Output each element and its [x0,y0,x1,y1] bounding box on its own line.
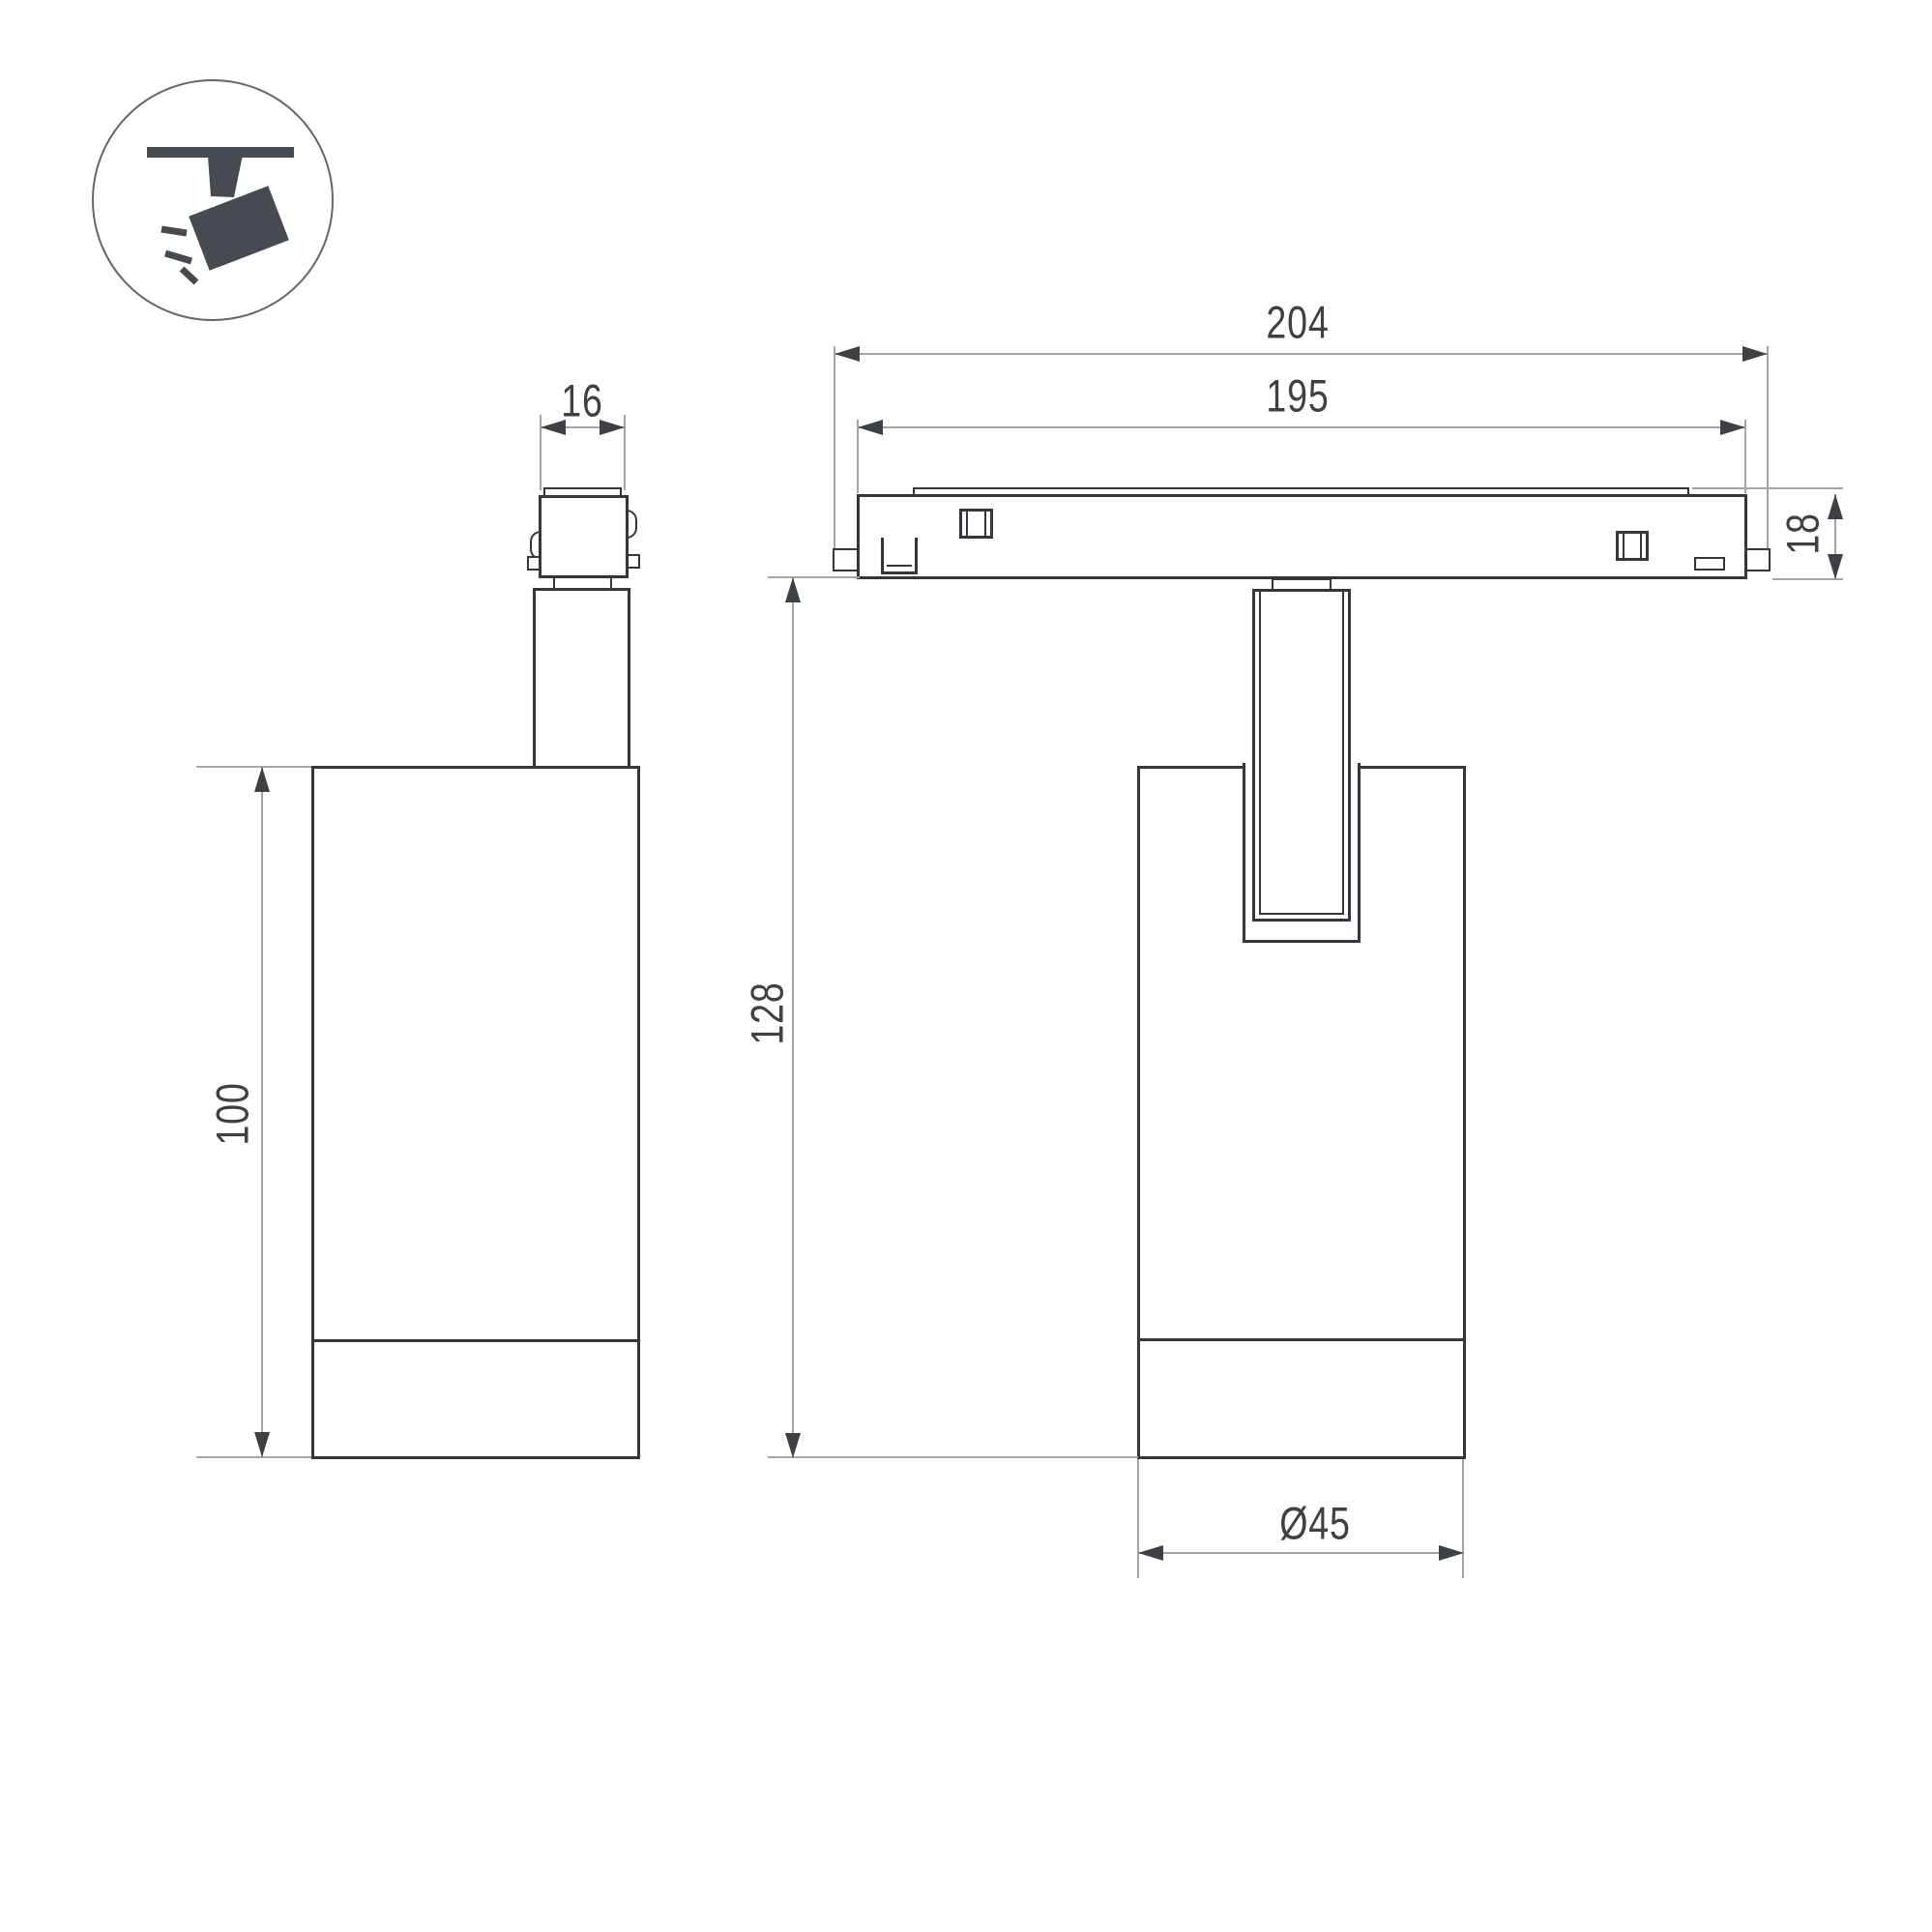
arrow-204-left [834,346,860,362]
dim-line-204 [834,353,1768,355]
dim-label-body-height: 100 [206,1082,259,1145]
fv-end-tab-right [1743,548,1771,571]
arrow-128-bottom [785,1433,801,1458]
icon-mount-stem [208,155,243,197]
dim-label-track-height: 18 [1776,512,1830,554]
arrow-18-bottom [1828,554,1843,579]
sv-lens-line [314,1339,637,1342]
fv-hole-right-rib-a [1623,534,1625,558]
fv-contact-clip [881,538,918,574]
dim-line-d45 [1138,1552,1464,1554]
arrow-204-right [1742,346,1768,362]
fv-end-tab-left [833,548,860,571]
arrow-d45-right [1439,1545,1464,1561]
arrow-100-top [254,767,270,792]
dim-line-195 [858,426,1745,428]
ext-line-128-bottom [768,1456,1138,1458]
arrow-d45-left [1138,1545,1163,1561]
fv-hole-right-rib-b [1640,534,1642,558]
arrow-16-right [600,420,625,435]
ext-line-204-left [834,346,835,550]
icon-lamp-head [189,186,289,271]
fv-slot-right [1694,557,1725,571]
arrow-128-top [785,577,801,602]
arrow-100-bottom [254,1432,270,1457]
fv-contact-clip-inner [887,565,912,567]
sv-stem [533,588,630,769]
dim-label-adapter-width: 16 [561,374,602,427]
icon-light-rays [161,229,196,282]
ext-line-18-top [1692,487,1843,489]
fv-hole-right [1616,531,1649,561]
ext-line-204-right [1767,346,1769,550]
arrow-195-left [858,420,883,435]
dimension-drawing: 16 100 204 195 18 [0,0,1932,1932]
arrow-18-top [1828,494,1843,519]
sv-body [311,766,640,1459]
track-spotlight-icon [92,79,334,321]
fv-hole-left-rib-a [966,512,968,536]
fv-stem-inner [1259,589,1344,915]
sv-adapter-box [539,495,629,578]
dim-label-track-outer: 204 [1266,296,1329,349]
dim-line-100 [261,767,263,1457]
ext-line-128-top [768,576,860,578]
sv-lock-foot-right [627,554,640,569]
dim-label-track-inner: 195 [1266,369,1329,423]
dim-label-body-diameter: Ø45 [1279,1497,1350,1550]
fv-lens-line [1140,1338,1463,1341]
dim-label-overall-height: 128 [741,981,794,1044]
fv-hole-left-rib-b [984,512,986,536]
fv-hole-left [959,509,993,539]
arrow-195-right [1720,420,1745,435]
